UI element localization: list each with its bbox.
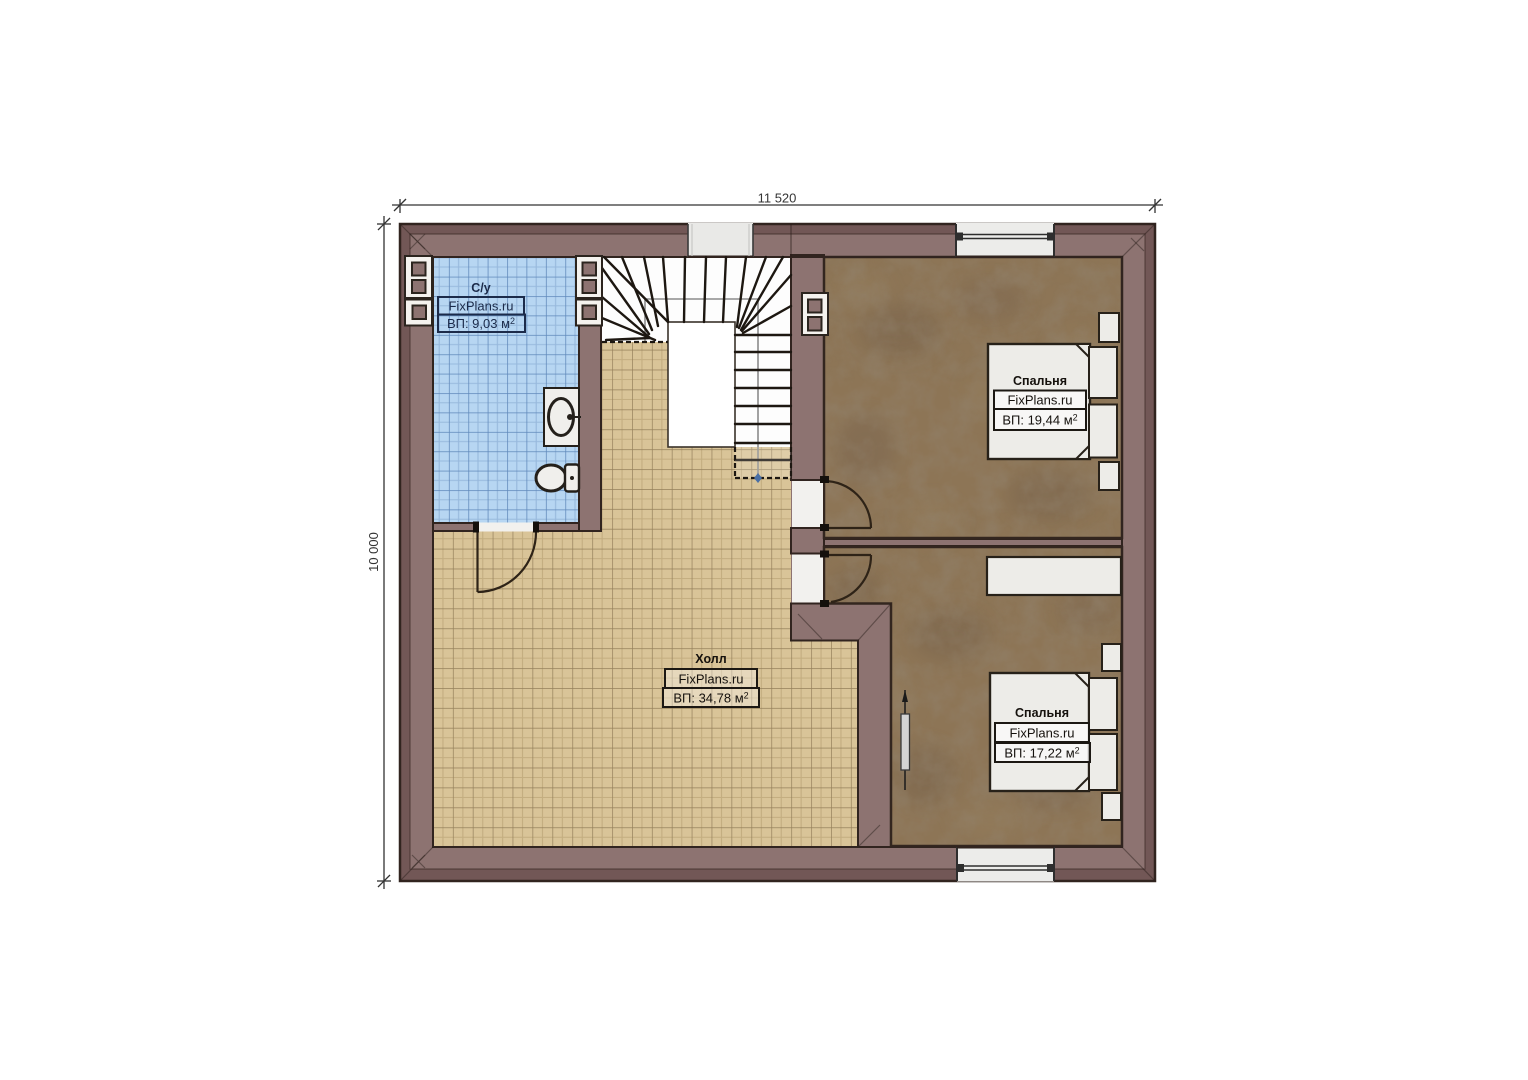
svg-text:Холл: Холл (695, 652, 726, 666)
svg-text:Спальня: Спальня (1013, 374, 1067, 388)
svg-text:FixPlans.ru: FixPlans.ru (448, 299, 513, 314)
svg-text:ВП: 19,44 м2: ВП: 19,44 м2 (1002, 413, 1077, 428)
svg-text:ВП: 9,03 м2: ВП: 9,03 м2 (447, 316, 515, 331)
svg-text:ВП: 17,22 м2: ВП: 17,22 м2 (1004, 746, 1079, 761)
svg-text:FixPlans.ru: FixPlans.ru (678, 672, 743, 687)
svg-text:С/у: С/у (471, 281, 491, 295)
svg-text:10 000: 10 000 (366, 532, 381, 572)
svg-text:Спальня: Спальня (1015, 706, 1069, 720)
svg-text:FixPlans.ru: FixPlans.ru (1009, 726, 1074, 741)
svg-text:FixPlans.ru: FixPlans.ru (1007, 393, 1072, 408)
svg-text:11 520: 11 520 (758, 191, 797, 206)
svg-text:ВП: 34,78 м2: ВП: 34,78 м2 (673, 691, 748, 706)
